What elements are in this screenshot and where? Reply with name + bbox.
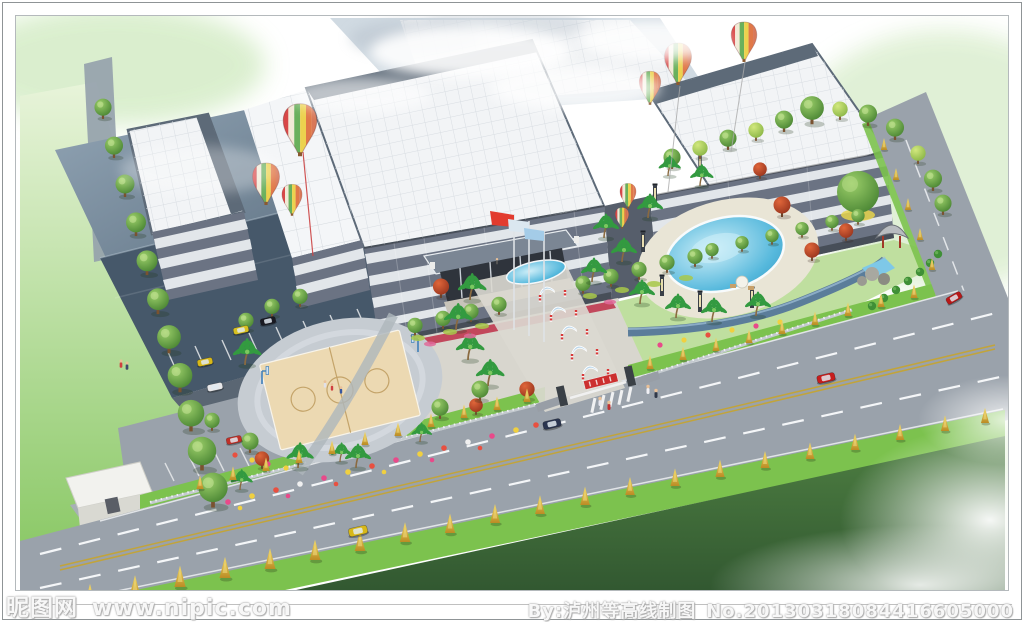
person-icon — [340, 386, 343, 393]
person-icon — [119, 360, 122, 368]
person-icon — [598, 397, 601, 406]
watermark-credit: By:泸州等高线制图 — [528, 601, 697, 622]
person-icon — [324, 380, 327, 387]
person-icon — [125, 362, 128, 370]
rendering-frame: 昵图网www.nipic.com By:泸州等高线制图No.2013031808… — [0, 0, 1024, 622]
aerial-rendering — [0, 0, 1024, 622]
watermark-right: By:泸州等高线制图No.20130318084416605000 — [528, 597, 1014, 622]
watermark-left: 昵图网www.nipic.com — [6, 588, 292, 622]
person-icon — [607, 401, 610, 410]
watermark-site-url: www.nipic.com — [92, 596, 292, 621]
person-icon — [496, 258, 498, 264]
watermark-site-name: 昵图网 — [6, 595, 78, 621]
person-icon — [646, 385, 649, 394]
person-icon — [654, 389, 657, 398]
person-icon — [331, 383, 334, 390]
watermark-serial: No.20130318084416605000 — [706, 601, 1014, 622]
